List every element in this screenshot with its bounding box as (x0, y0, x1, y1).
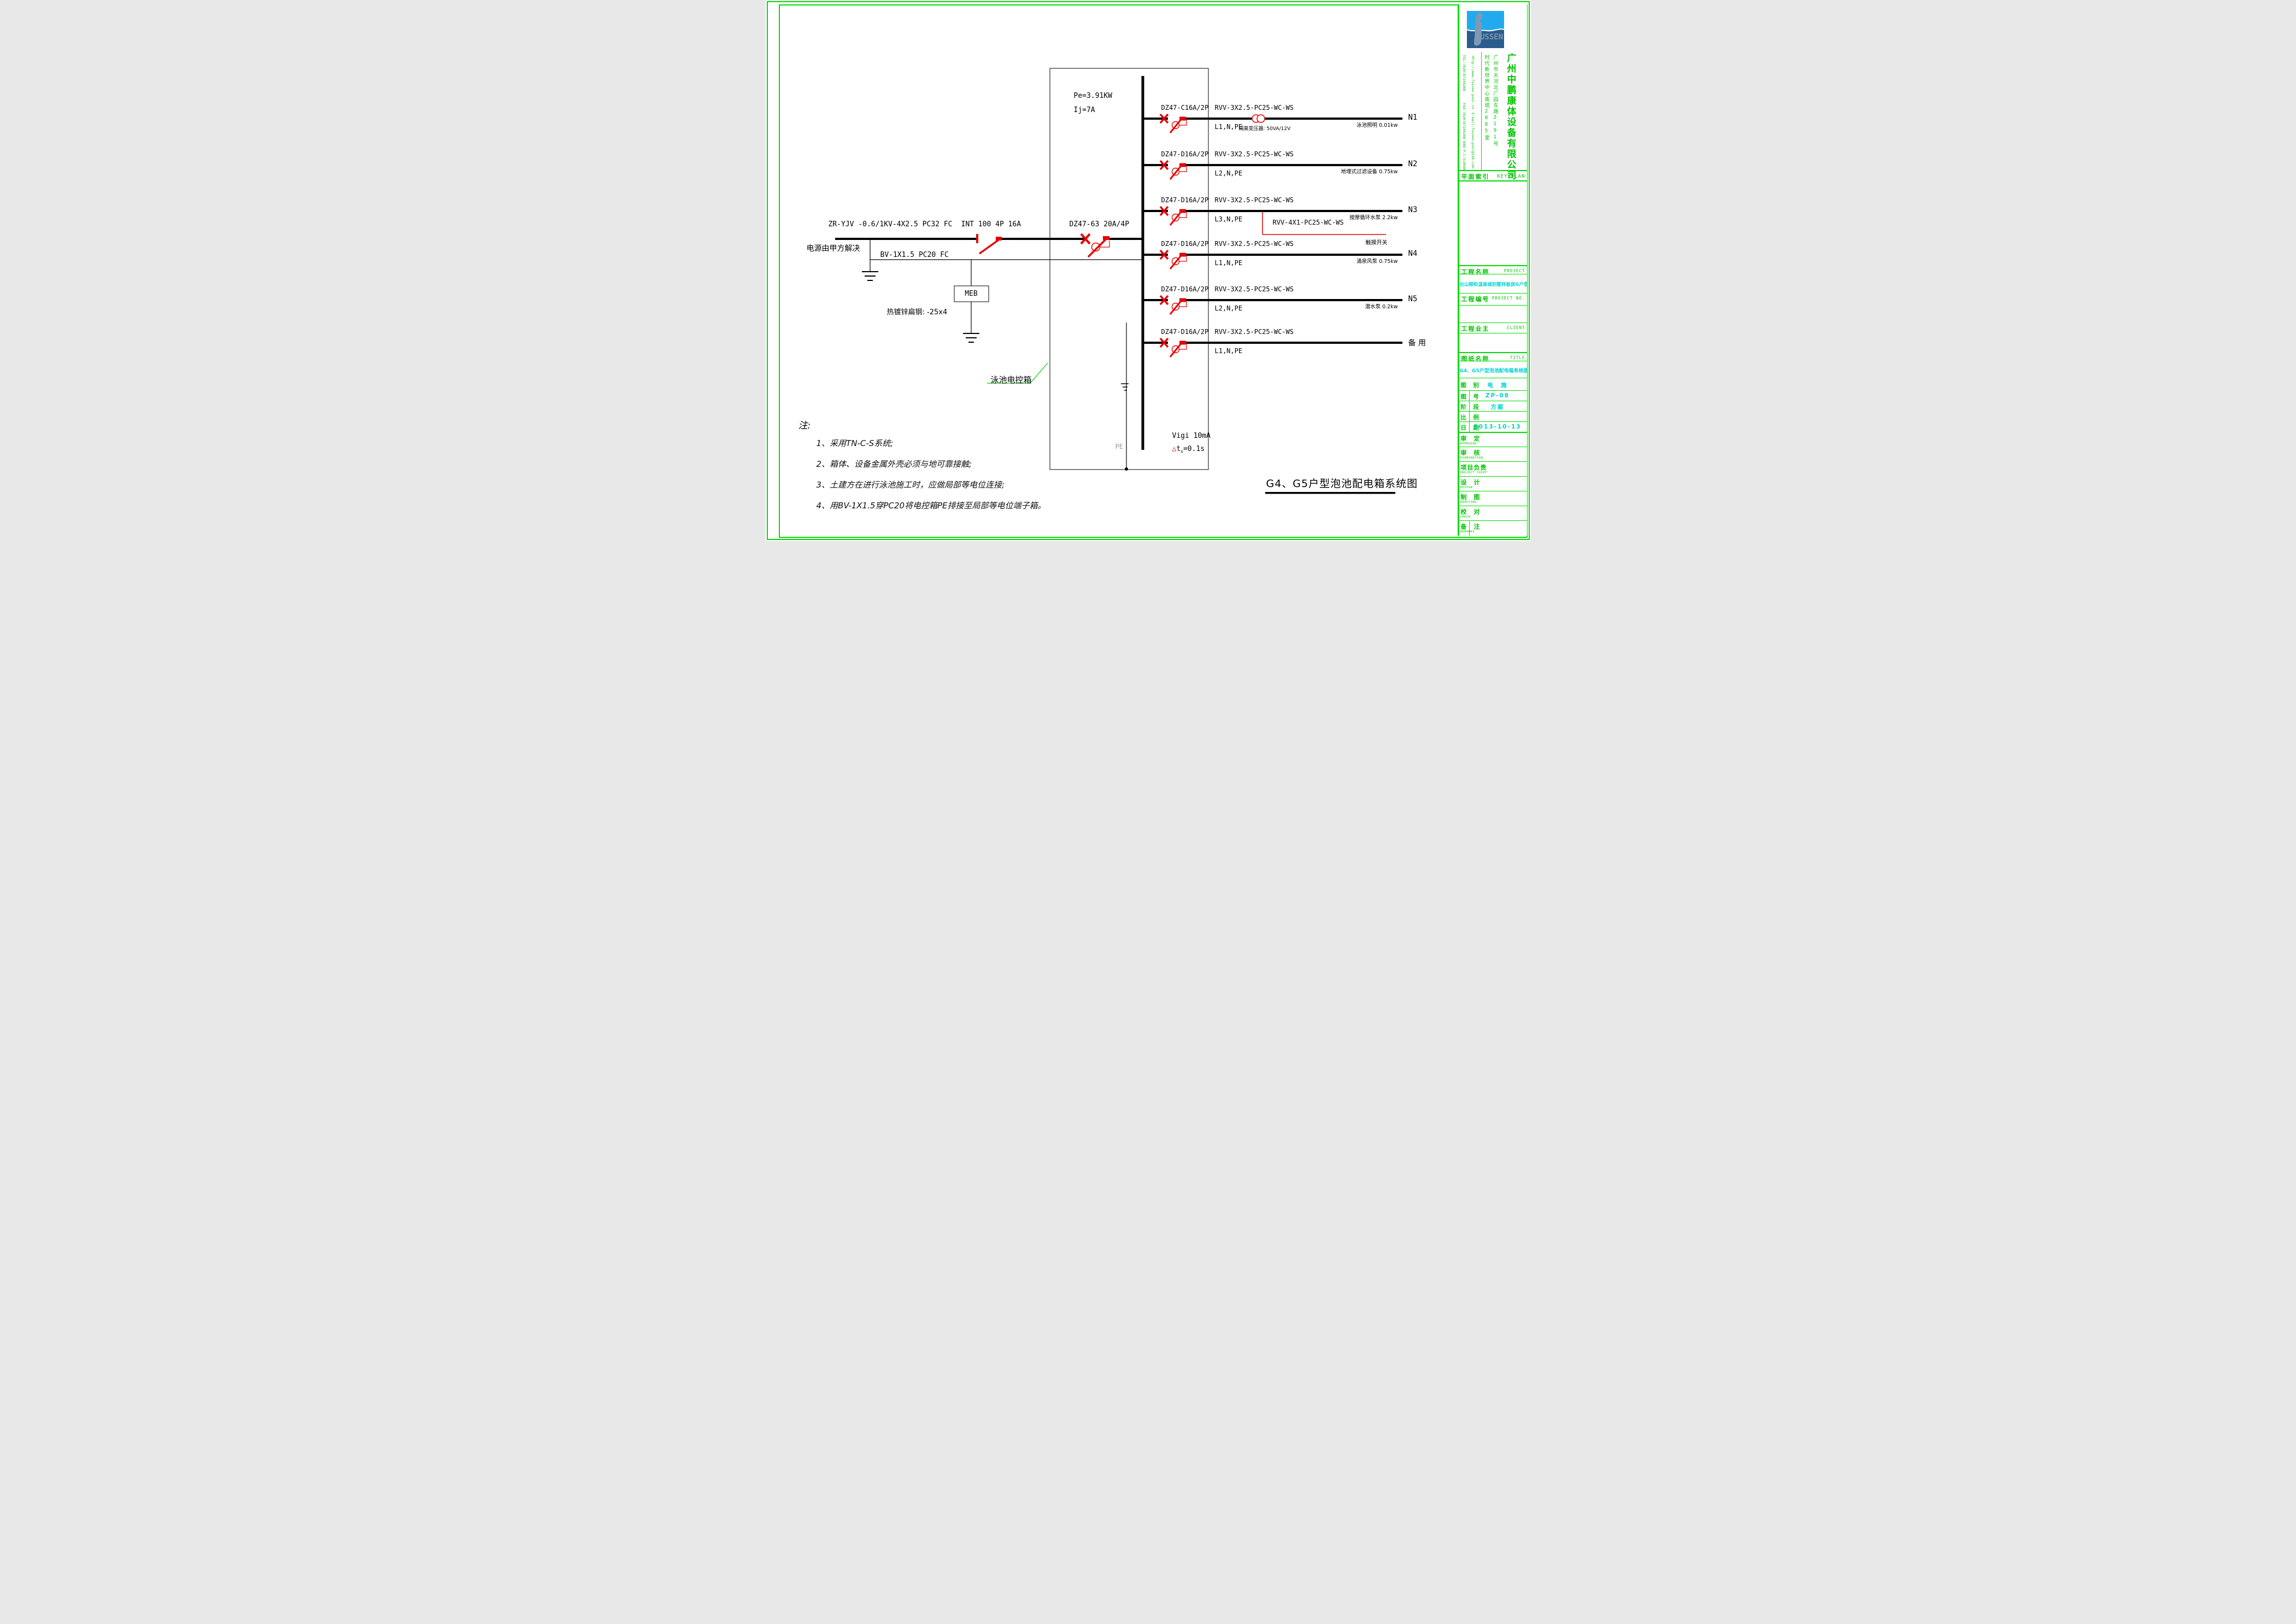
project-no-row: 工程编号 PROJECT NO. (1459, 293, 1527, 305)
tap-load-label: 触摸开关 (1366, 238, 1388, 246)
branch-cable-label-N5: RVV-3X2.5-PC25-WC-WS (1215, 285, 1294, 293)
project-name: 台山颐和温泉城别墅样板房G户型泡池 (1460, 281, 1527, 288)
diagram-title-underline (1265, 492, 1395, 494)
project-no-value-row (1459, 305, 1527, 323)
meb-label: MEB (954, 290, 989, 298)
transformer-label: 隔离变压器: 50VA/12V (1239, 125, 1291, 132)
project-label-row: 工程名称 PROJECT (1459, 265, 1527, 274)
company-name: 广州中鹏康体设备有限公司 (1504, 53, 1518, 181)
attr-row-4: 比 例 (1459, 411, 1527, 421)
title-label-row: 图纸名称 TITLE (1459, 352, 1527, 361)
branch-breaker-label-N4: DZ47-D16A/2P (1161, 240, 1209, 248)
branch-breaker-label-N1: DZ47-C16A/2P (1161, 104, 1209, 112)
project-name-row: 台山颐和温泉城别墅样板房G户型泡池 (1459, 274, 1527, 293)
company-fax: FAX:(020)87244208-608 (1462, 103, 1466, 148)
branch-breaker-label-备 用: DZ47-D16A/2P (1161, 328, 1209, 336)
branch-breaker-label-N5: DZ47-D16A/2P (1161, 285, 1209, 293)
branch-cable-label-N3: RVV-3X2.5-PC25-WC-WS (1215, 196, 1294, 204)
pe-bond-cable-label: BV-1X1.5 PC20 FC (880, 251, 949, 259)
signature-label-cn: 制 图 (1461, 493, 1481, 501)
source-note-label: 电源由甲方解决 (807, 243, 860, 254)
branch-phases-label-N5: L2,N,PE (1215, 304, 1243, 312)
key-plan-row: 平面索引 KEY PLAN (1459, 170, 1527, 180)
title-block: USSEN TEL:(020)87244208 FAX:(020)8724420… (1458, 4, 1527, 536)
client-value-row (1459, 333, 1527, 352)
power-label: Pe=3.91KW (1074, 92, 1112, 100)
attr-row-2: 图 号ZP-08 (1459, 390, 1527, 401)
branch-id-N1: N1 (1408, 113, 1418, 122)
current-label: Ij=7A (1074, 106, 1095, 114)
signature-label-en: REMARKS (1460, 530, 1475, 533)
signature-label-en: DESIGN (1460, 486, 1473, 489)
isolator-switch-symbol (976, 234, 1002, 254)
control-box-label: 泳池电控箱 (991, 374, 1032, 385)
attr-row-5: 日 期2013-10-13 (1459, 421, 1527, 432)
branch-phases-label-N2: L2,N,PE (1215, 169, 1243, 177)
signature-label-cn: 备 注 (1461, 522, 1481, 531)
signature-label-cn: 审 定 (1461, 434, 1481, 443)
rcd-label: Vigi 10mA (1172, 432, 1211, 440)
attr-value: 2013-10-13 (1469, 424, 1526, 430)
notes-title: 注: (798, 418, 811, 431)
branch-breaker-label-N3: DZ47-D16A/2P (1161, 196, 1209, 204)
client-row: 工程业主 CLIENT (1459, 323, 1527, 333)
branch-load-label-N2: 地埋式过滤设备 0.75kw (1289, 167, 1398, 175)
company-address-2: 时代新世界中心南塔2885室 (1483, 55, 1490, 141)
source-cable-label: ZR-YJV -0.6/1KV-4X2.5 PC32 FC (829, 220, 953, 228)
signature-row-examination: 审 核EXAMINATION (1459, 447, 1527, 461)
branch-cable-label-N2: RVV-3X2.5-PC25-WC-WS (1215, 150, 1294, 158)
signature-label-en: APPROVED (1460, 442, 1477, 445)
note-item-1: 1、采用TN-C-S系统; (817, 437, 894, 449)
attr-value: 电 施 (1469, 381, 1526, 389)
branch-cable-label-N4: RVV-3X2.5-PC25-WC-WS (1215, 240, 1294, 248)
branch-breaker-label-N2: DZ47-D16A/2P (1161, 150, 1209, 158)
attr-row-3: 阶 段方案 (1459, 401, 1527, 411)
branch-cable-label-N1: RVV-3X2.5-PC25-WC-WS (1215, 104, 1294, 112)
company-email: E-mail:fussen-pool@126.com (1471, 113, 1475, 168)
company-website: Http://www.fussen-pool.cn (1471, 56, 1475, 109)
logo-text: USSEN (1480, 33, 1503, 42)
remarks-divider (1469, 521, 1470, 536)
branch-load-label-N4: 涌泉风泵 0.75kw (1289, 257, 1398, 265)
contact-divider (1481, 52, 1482, 170)
note-item-3: 3、土建方在进行泳池施工时，应做局部等电位连接; (817, 479, 1005, 490)
signature-row-drafting: 制 图DRAFTING (1459, 491, 1527, 506)
main-breaker-symbol (1081, 234, 1109, 257)
branch-id-备 用: 备 用 (1408, 337, 1426, 348)
company-postcode: P.C:510500 (1462, 150, 1466, 171)
company-tel: TEL:(020)87244208 (1462, 55, 1466, 91)
signature-row-approved: 审 定APPROVED (1459, 432, 1527, 447)
signature-label-en: DRAFTING (1460, 501, 1477, 504)
signature-row-design: 设 计DESIGN (1459, 476, 1527, 491)
branch-id-N3: N3 (1408, 206, 1418, 214)
note-item-2: 2、箱体、设备金属外壳必须与地可靠接触; (817, 458, 972, 470)
attr-row-1: 图 别电 施 (1459, 378, 1527, 390)
main-breaker-label: DZ47-63 20A/4P (1070, 220, 1130, 228)
branch-phases-label-N4: L1,N,PE (1215, 259, 1243, 267)
signature-row-remarks: 备 注REMARKS (1459, 520, 1527, 536)
branch-id-N5: N5 (1408, 295, 1418, 303)
attr-label: 比 例 (1461, 413, 1480, 421)
branch-load-label-N5: 潜水泵 0.2kw (1289, 302, 1398, 310)
company-address-1: 广州市天河北广园东路2191号 (1492, 55, 1499, 147)
earth-symbol-2 (963, 333, 979, 342)
signature-label-en: CHECK (1460, 515, 1471, 519)
branch-id-N2: N2 (1408, 160, 1418, 168)
fussen-logo: USSEN (1467, 11, 1504, 48)
signature-label-cn: 设 计 (1461, 478, 1481, 486)
drawing-sheet: ZR-YJV -0.6/1KV-4X2.5 PC32 FC 电源由甲方解决 BV… (766, 0, 1531, 541)
tap-cable-label: RVV-4X1-PC25-WC-WS (1273, 219, 1344, 226)
signature-label-cn: 项目负责 (1461, 463, 1487, 472)
signature-label-en: EXAMINATION (1460, 456, 1483, 460)
branch-phases-label-N1: L1,N,PE (1215, 123, 1243, 131)
branch-phases-label-备 用: L1,N,PE (1215, 347, 1243, 355)
diagram-title: G4、G5户型泡池配电箱系统图 (1266, 476, 1418, 490)
earth-symbol (862, 272, 878, 280)
attr-value: ZP-08 (1469, 392, 1526, 399)
signature-row-project-chief: 项目负责PROJECT CHIEF (1459, 461, 1527, 476)
signature-row-check: 校 对CHECK (1459, 506, 1527, 520)
rcd-time-label: △ts=0.1s (1172, 445, 1205, 454)
drawing-title-value: G4、G5户型泡池配电箱系统图 (1460, 367, 1527, 374)
branch-load-label-N1: 泳池照明 0.01kw (1289, 121, 1398, 128)
drawing-title-row: G4、G5户型泡池配电箱系统图 (1459, 361, 1527, 378)
note-item-4: 4、用BV-1X1.5穿PC20将电控箱PE排接至局部等电位端子箱。 (817, 500, 1046, 511)
attr-value: 方案 (1469, 403, 1526, 411)
signature-label-cn: 审 核 (1461, 448, 1481, 457)
branch-id-N4: N4 (1408, 249, 1418, 258)
branch-phases-label-N3: L3,N,PE (1215, 215, 1243, 223)
signature-label-en: PROJECT CHIEF (1460, 471, 1488, 474)
pe-label: PE (1115, 443, 1123, 450)
branch-cable-label-备 用: RVV-3X2.5-PC25-WC-WS (1215, 328, 1294, 336)
control-box-outline (1050, 68, 1208, 470)
earth-strip-label: 热镀锌扁钢: -25x4 (887, 306, 948, 316)
isolator-label: INT 100 4P 16A (961, 220, 1021, 228)
key-plan-area (1459, 180, 1527, 265)
attr-divider (1469, 412, 1470, 421)
signature-label-cn: 校 对 (1461, 507, 1481, 516)
